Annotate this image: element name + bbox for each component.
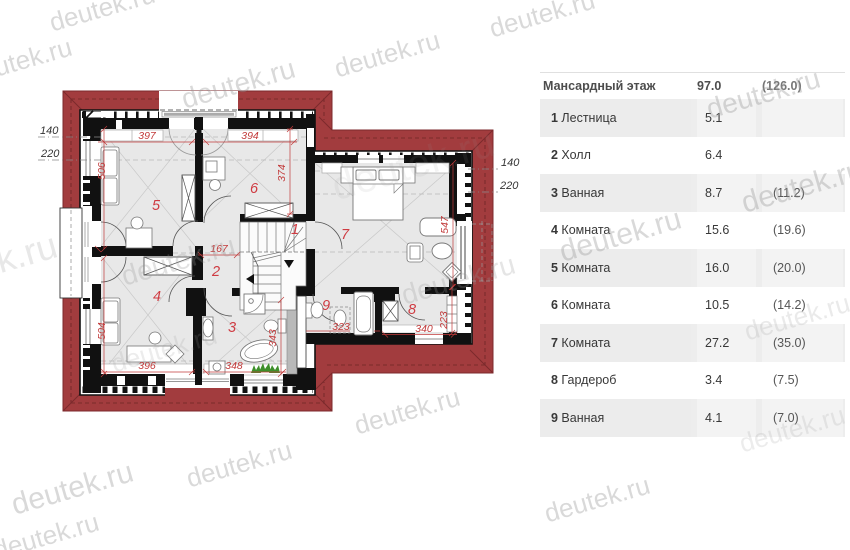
svg-text:547: 547 — [439, 215, 451, 234]
svg-text:348: 348 — [225, 360, 243, 372]
svg-text:220: 220 — [40, 148, 60, 160]
svg-text:140: 140 — [40, 125, 59, 137]
svg-text:394: 394 — [241, 130, 259, 142]
svg-text:1: 1 — [291, 222, 299, 238]
svg-text:397: 397 — [138, 130, 157, 142]
svg-text:3: 3 — [228, 320, 236, 336]
svg-text:140: 140 — [501, 157, 520, 169]
svg-text:7: 7 — [341, 227, 350, 243]
svg-text:223: 223 — [438, 311, 450, 330]
svg-text:374: 374 — [276, 164, 288, 182]
svg-text:343: 343 — [267, 329, 279, 347]
svg-text:506: 506 — [96, 162, 108, 180]
svg-text:4: 4 — [153, 289, 161, 305]
svg-text:504: 504 — [96, 322, 108, 340]
svg-text:6: 6 — [250, 181, 259, 197]
svg-text:220: 220 — [499, 180, 519, 192]
svg-text:5: 5 — [152, 198, 161, 214]
svg-text:340: 340 — [415, 323, 433, 335]
svg-text:9: 9 — [322, 298, 330, 314]
